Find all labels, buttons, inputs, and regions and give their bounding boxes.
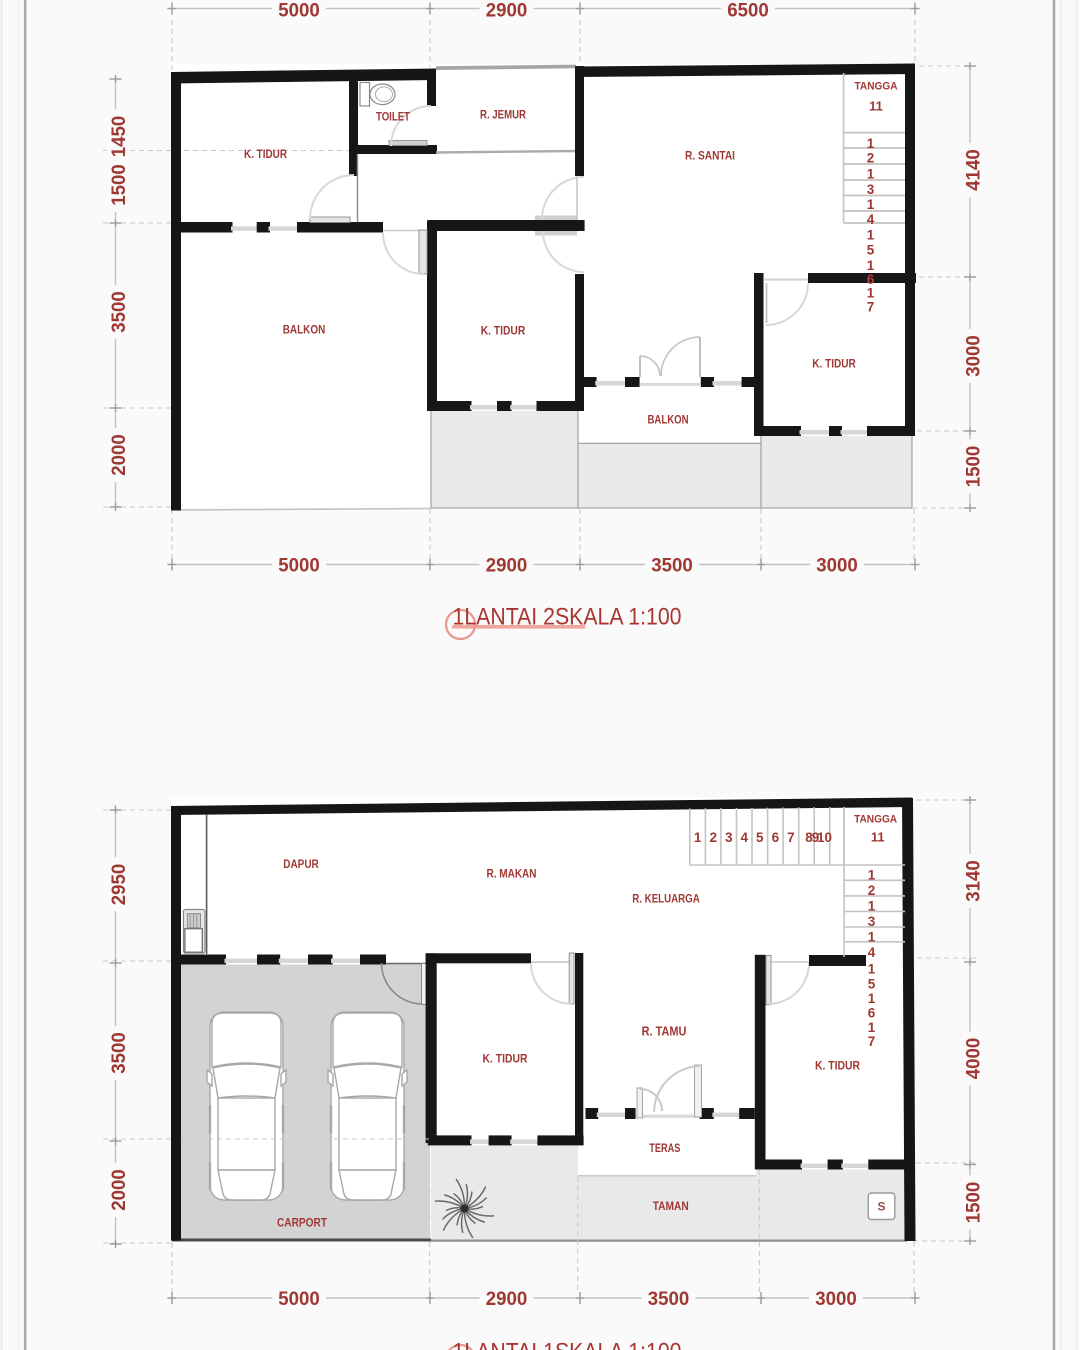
svg-text:1: 1 — [867, 166, 875, 181]
svg-text:4000: 4000 — [963, 1038, 985, 1080]
svg-text:11: 11 — [869, 99, 883, 114]
svg-text:1500: 1500 — [963, 1182, 985, 1224]
svg-text:4: 4 — [868, 945, 876, 960]
svg-text:S: S — [877, 1200, 885, 1214]
svg-text:4: 4 — [741, 830, 749, 845]
svg-text:1: 1 — [868, 991, 876, 1006]
svg-text:5: 5 — [868, 977, 876, 992]
svg-text:1: 1 — [694, 830, 702, 845]
svg-text:R. TAMU: R. TAMU — [642, 1025, 687, 1039]
svg-text:5: 5 — [756, 830, 764, 845]
svg-text:3000: 3000 — [815, 1288, 857, 1310]
svg-text:3: 3 — [725, 830, 733, 845]
svg-text:6500: 6500 — [727, 0, 769, 22]
svg-text:2900: 2900 — [486, 1288, 528, 1310]
svg-text:K. TIDUR: K. TIDUR — [815, 1059, 860, 1073]
svg-text:6: 6 — [868, 1006, 876, 1021]
svg-text:1450: 1450 — [108, 116, 130, 158]
svg-text:1LANTAI 1SKALA 1:100: 1LANTAI 1SKALA 1:100 — [453, 1338, 682, 1350]
svg-text:K. TIDUR: K. TIDUR — [812, 357, 856, 371]
svg-text:3500: 3500 — [648, 1288, 690, 1310]
svg-text:6: 6 — [772, 830, 780, 845]
svg-text:1: 1 — [868, 930, 876, 945]
svg-text:1500: 1500 — [108, 164, 130, 206]
svg-text:2: 2 — [868, 883, 876, 898]
svg-text:R. KELUARGA: R. KELUARGA — [632, 892, 700, 906]
svg-text:2: 2 — [867, 151, 875, 166]
svg-text:R. SANTAI: R. SANTAI — [685, 149, 735, 163]
svg-text:2: 2 — [709, 830, 717, 845]
svg-text:3140: 3140 — [963, 860, 985, 902]
svg-text:TAMAN: TAMAN — [653, 1199, 689, 1213]
svg-text:10: 10 — [817, 830, 832, 845]
svg-text:BALKON: BALKON — [648, 413, 689, 427]
svg-text:2000: 2000 — [108, 1169, 130, 1211]
svg-text:2000: 2000 — [108, 434, 130, 476]
svg-text:2900: 2900 — [486, 555, 528, 577]
svg-text:1: 1 — [868, 962, 876, 977]
svg-text:3000: 3000 — [963, 335, 985, 377]
svg-text:11: 11 — [871, 830, 885, 845]
svg-text:1: 1 — [867, 227, 875, 242]
svg-text:TERAS: TERAS — [649, 1141, 680, 1155]
svg-text:3500: 3500 — [651, 555, 693, 577]
svg-text:1: 1 — [867, 258, 875, 273]
svg-text:1: 1 — [867, 286, 875, 301]
svg-text:5000: 5000 — [278, 1288, 320, 1310]
svg-text:DAPUR: DAPUR — [283, 857, 319, 871]
svg-text:1: 1 — [867, 197, 875, 212]
svg-text:1: 1 — [868, 899, 876, 914]
svg-text:4: 4 — [867, 212, 875, 227]
svg-text:BALKON: BALKON — [283, 323, 326, 337]
svg-text:5000: 5000 — [278, 0, 320, 22]
svg-text:3: 3 — [867, 182, 875, 197]
svg-text:TANGGA: TANGGA — [854, 814, 897, 826]
svg-text:3000: 3000 — [816, 555, 858, 577]
svg-text:1LANTAI 2SKALA 1:100: 1LANTAI 2SKALA 1:100 — [453, 603, 682, 630]
svg-text:TANGGA: TANGGA — [855, 81, 898, 93]
svg-text:CARPORT: CARPORT — [277, 1216, 328, 1230]
svg-text:K. TIDUR: K. TIDUR — [244, 147, 287, 161]
svg-text:7: 7 — [787, 830, 795, 845]
svg-text:1500: 1500 — [963, 446, 985, 488]
svg-text:1: 1 — [868, 1020, 876, 1035]
svg-text:7: 7 — [867, 299, 875, 314]
svg-text:K. TIDUR: K. TIDUR — [481, 324, 526, 338]
svg-text:TOILET: TOILET — [376, 110, 411, 124]
svg-text:3: 3 — [868, 914, 876, 929]
svg-text:1: 1 — [867, 136, 875, 151]
svg-text:1: 1 — [868, 868, 876, 883]
svg-text:4140: 4140 — [963, 149, 985, 191]
svg-text:R. JEMUR: R. JEMUR — [480, 108, 526, 122]
svg-text:R. MAKAN: R. MAKAN — [487, 867, 537, 881]
svg-text:2950: 2950 — [108, 864, 130, 906]
svg-text:3500: 3500 — [108, 291, 130, 333]
svg-text:5: 5 — [867, 243, 875, 258]
svg-text:5000: 5000 — [278, 555, 320, 577]
svg-text:3500: 3500 — [108, 1032, 130, 1074]
svg-text:2900: 2900 — [486, 0, 528, 22]
svg-text:K. TIDUR: K. TIDUR — [483, 1052, 528, 1066]
svg-text:7: 7 — [868, 1034, 876, 1049]
